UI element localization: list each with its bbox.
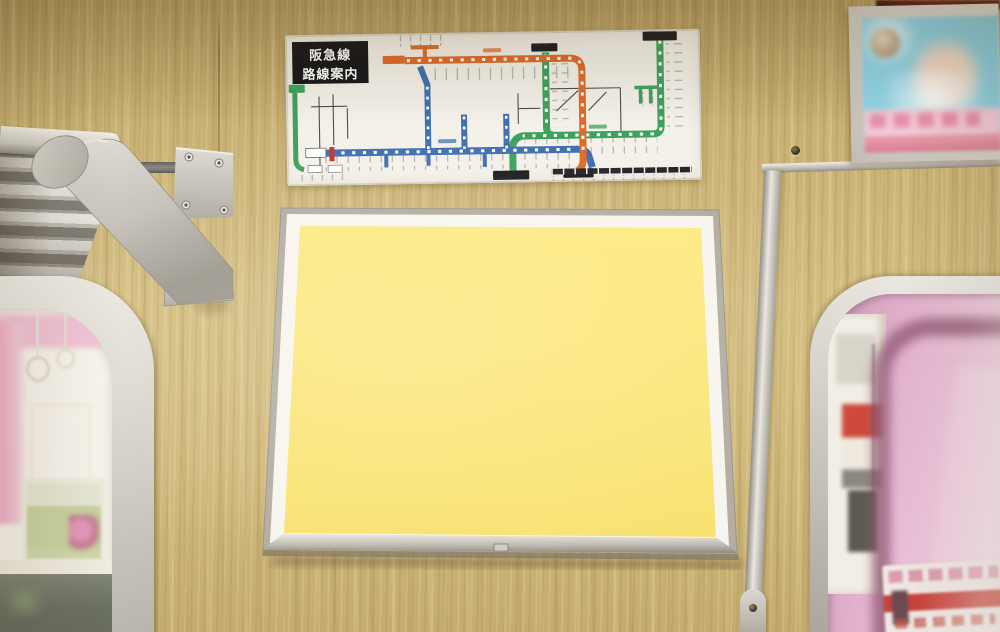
ad-panel xyxy=(250,195,750,570)
pink-text-smudge xyxy=(870,112,980,128)
route-map-poster: 阪急線 路線案内 xyxy=(285,29,701,185)
blank-yellow-ad-space xyxy=(284,226,716,537)
panel-clip xyxy=(494,544,508,551)
top-right-poster-frame xyxy=(848,3,1000,162)
left-window-glass xyxy=(0,308,112,632)
fitting-screw xyxy=(749,604,757,612)
overexposure-wash xyxy=(0,308,112,632)
wall-screw-hole xyxy=(791,146,800,155)
glass-sheen xyxy=(828,294,1000,632)
top-right-poster-image xyxy=(862,15,1000,153)
map-title-box: 阪急線 路線案内 xyxy=(292,41,369,84)
map-title-line2: 路線案内 xyxy=(292,65,368,85)
right-window-glass xyxy=(828,294,1000,632)
red-pink-strip xyxy=(864,133,1000,153)
wall-mount-plate xyxy=(173,148,234,219)
legend-bar xyxy=(551,167,692,175)
map-title-line1: 阪急線 xyxy=(292,46,368,66)
train-interior-photo: 阪急線 路線案内 xyxy=(0,0,1000,632)
